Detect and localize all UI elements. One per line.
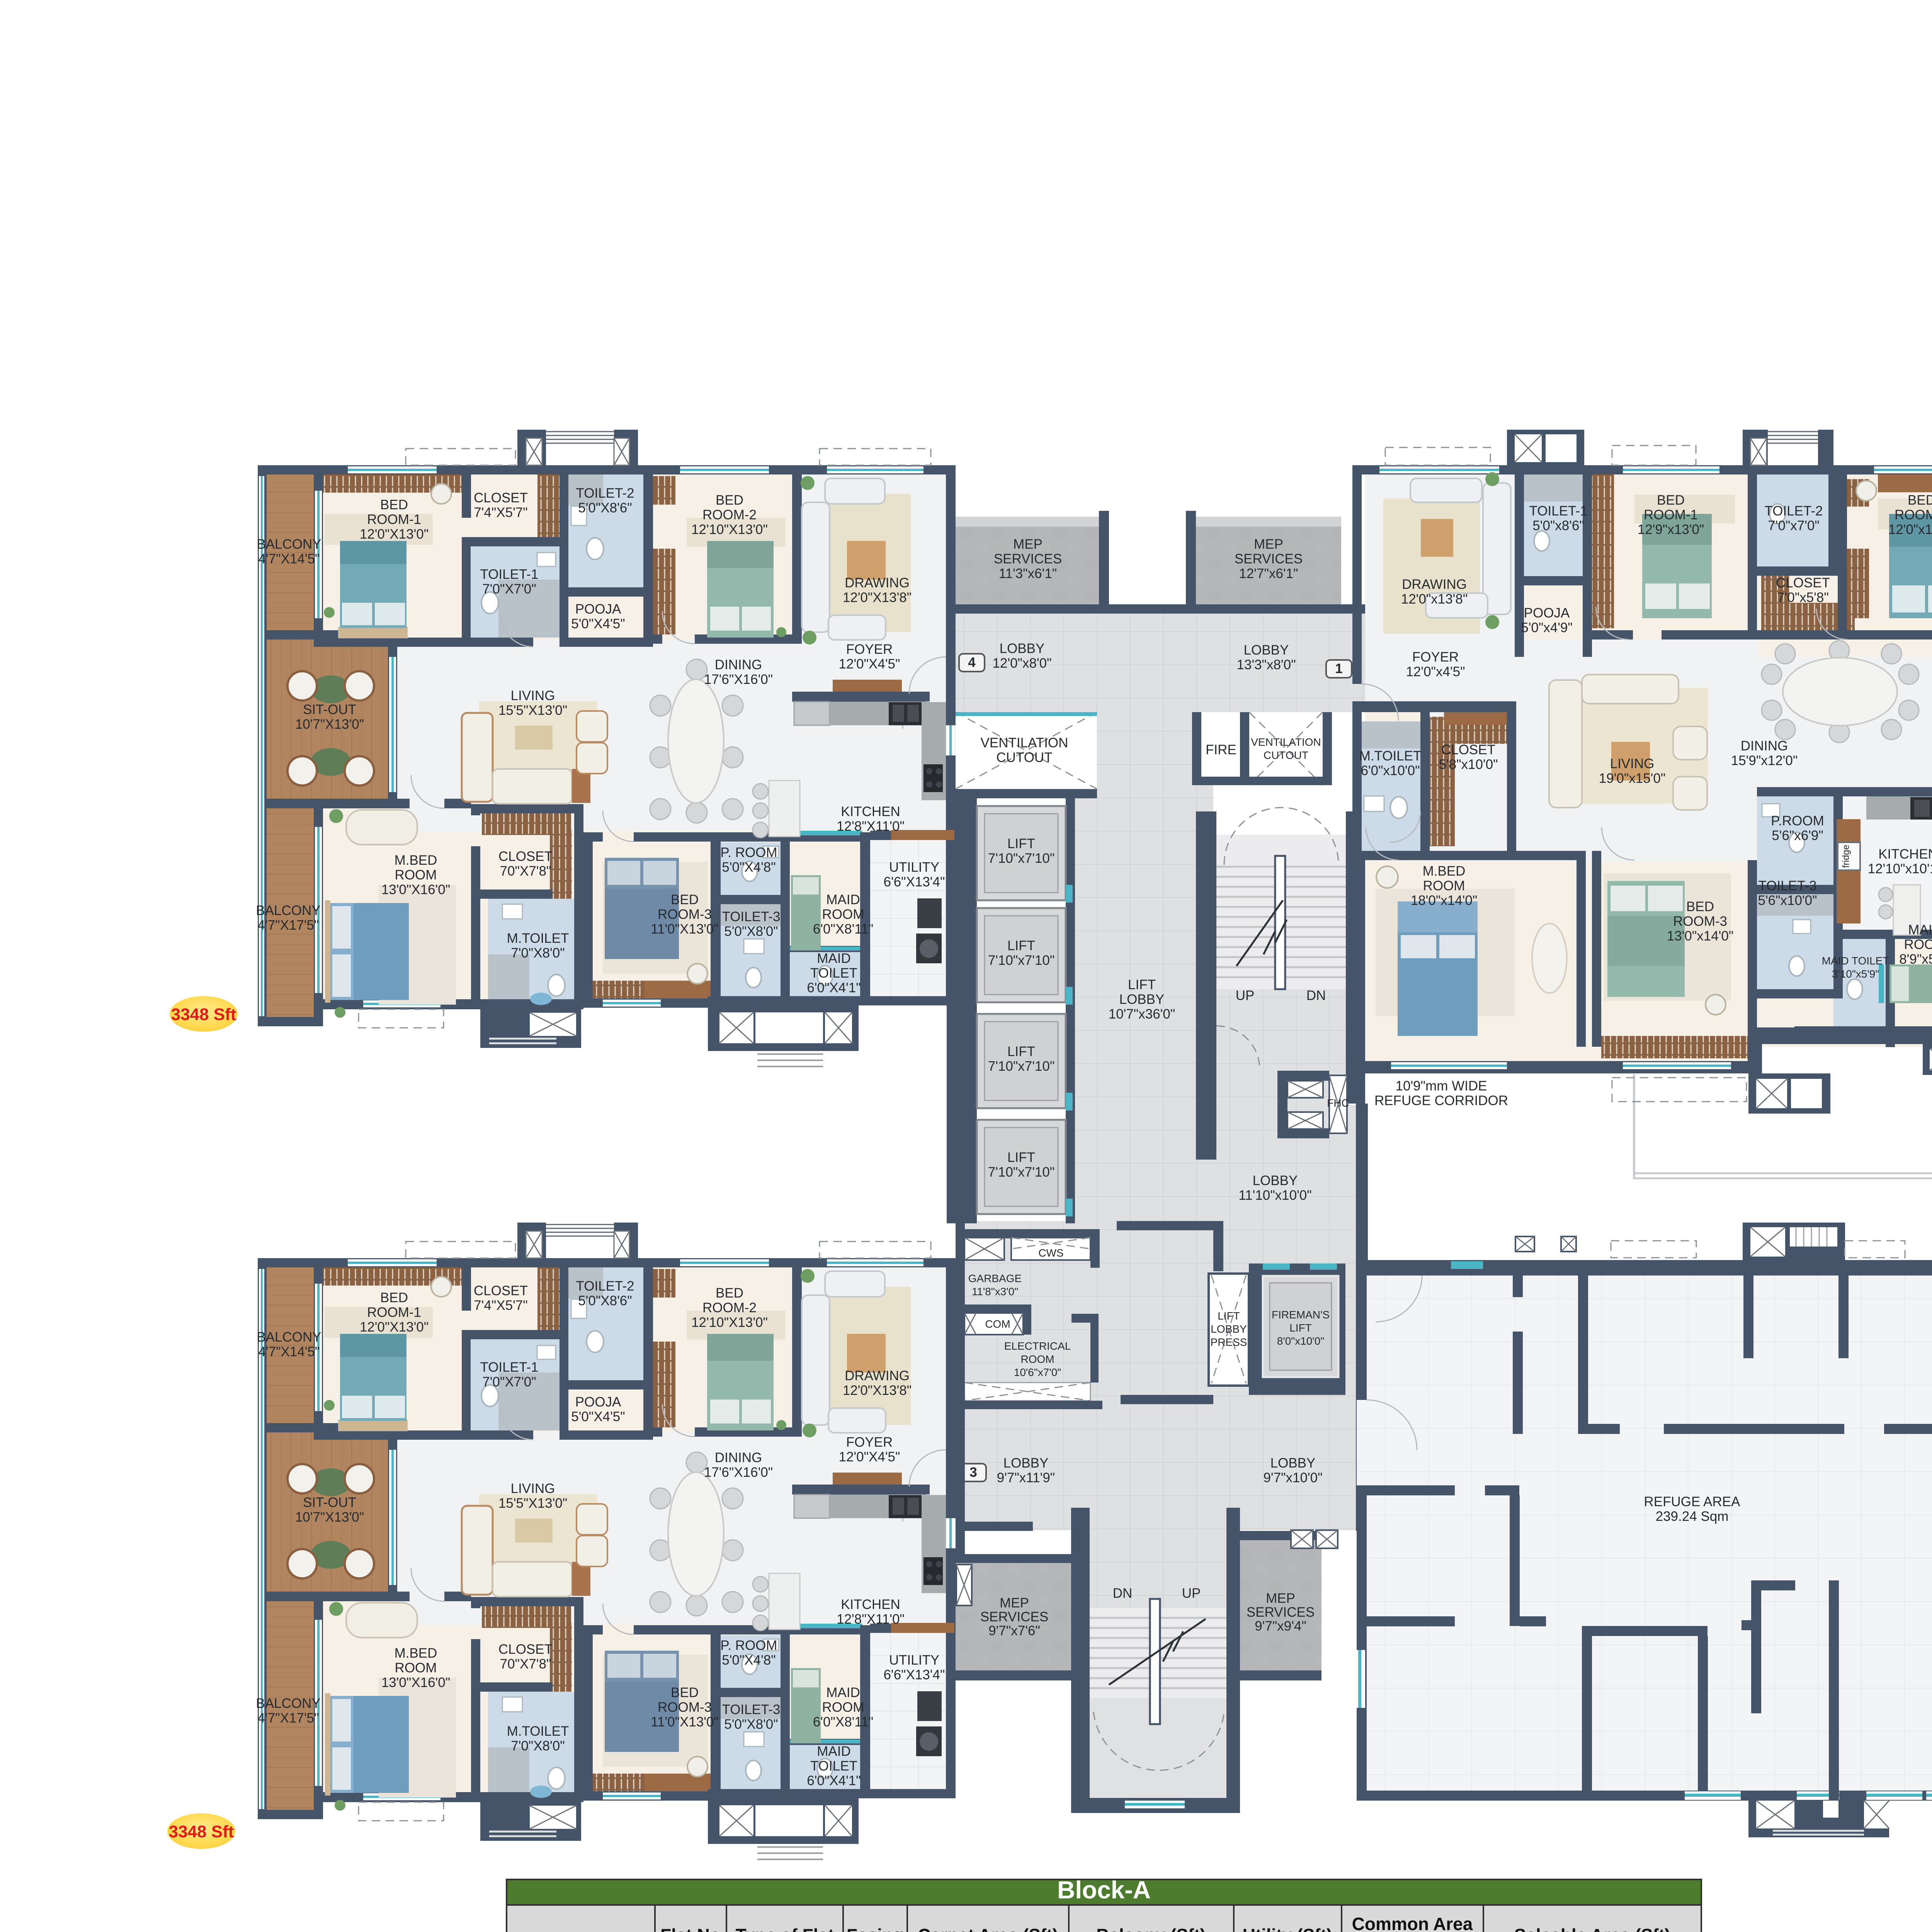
svg-text:Flat No: Flat No xyxy=(660,1925,721,1932)
svg-text:13'0"x14'0": 13'0"x14'0" xyxy=(1667,929,1734,944)
svg-text:MAID: MAID xyxy=(826,892,860,907)
svg-text:70"X7'8": 70"X7'8" xyxy=(500,864,551,879)
svg-text:8'9"x5'9": 8'9"x5'9" xyxy=(1899,952,1932,967)
svg-text:fridge: fridge xyxy=(1841,845,1851,868)
svg-text:LIFT: LIFT xyxy=(1007,1150,1035,1165)
svg-text:SIT-OUT: SIT-OUT xyxy=(303,702,356,717)
svg-text:5'0"X8'6": 5'0"X8'6" xyxy=(578,500,632,515)
svg-text:LIFT: LIFT xyxy=(1128,977,1156,992)
svg-text:12'0"x8'0": 12'0"x8'0" xyxy=(992,656,1051,671)
svg-text:Type of Flat: Type of Flat xyxy=(736,1925,834,1932)
svg-text:6'6"X13'4": 6'6"X13'4" xyxy=(884,874,945,889)
svg-text:DINING: DINING xyxy=(1741,738,1788,753)
svg-text:CLOSET: CLOSET xyxy=(474,490,528,505)
svg-text:BED: BED xyxy=(1686,899,1714,914)
svg-text:DRAWING: DRAWING xyxy=(845,575,910,590)
svg-text:P.ROOM: P.ROOM xyxy=(1771,813,1824,828)
svg-text:ROOM: ROOM xyxy=(1020,1353,1054,1365)
svg-text:Utility (Sft): Utility (Sft) xyxy=(1243,1925,1333,1932)
svg-text:LOBBY: LOBBY xyxy=(1270,1456,1316,1471)
svg-text:Carpet Area (Sft): Carpet Area (Sft) xyxy=(918,1925,1058,1932)
svg-text:5'6"x10'0": 5'6"x10'0" xyxy=(1758,893,1817,908)
svg-text:5'0"x8'6": 5'0"x8'6" xyxy=(1532,518,1584,533)
svg-text:1: 1 xyxy=(1335,661,1342,676)
svg-text:GARBAGE: GARBAGE xyxy=(968,1272,1022,1284)
svg-text:REFUGE AREA: REFUGE AREA xyxy=(1644,1494,1741,1509)
svg-text:TOILET: TOILET xyxy=(810,966,857,981)
svg-text:ROOM-1: ROOM-1 xyxy=(1644,507,1698,522)
svg-text:DRAWING: DRAWING xyxy=(1402,577,1467,592)
svg-text:BALCONY: BALCONY xyxy=(256,903,320,918)
svg-text:12'9"x13'0": 12'9"x13'0" xyxy=(1638,522,1704,537)
svg-text:ROOM: ROOM xyxy=(1904,937,1932,952)
svg-text:4'7"X17'5": 4'7"X17'5" xyxy=(258,918,319,933)
svg-text:TOILET-1: TOILET-1 xyxy=(1529,503,1587,519)
svg-text:TOILET-2: TOILET-2 xyxy=(1764,503,1823,519)
svg-text:LIVING: LIVING xyxy=(1610,756,1655,771)
svg-text:LOBBY: LOBBY xyxy=(1244,643,1289,658)
svg-text:LIFT: LIFT xyxy=(1007,836,1035,851)
svg-text:DN: DN xyxy=(1113,1586,1133,1601)
svg-text:Saleable Area (Sft): Saleable Area (Sft) xyxy=(1514,1925,1671,1932)
svg-text:UP: UP xyxy=(1182,1586,1201,1601)
svg-text:SERVICES: SERVICES xyxy=(1235,551,1303,566)
svg-text:POOJA: POOJA xyxy=(575,602,621,617)
svg-text:KITCHEN: KITCHEN xyxy=(841,804,900,819)
svg-text:LIVING: LIVING xyxy=(511,688,555,703)
svg-text:CUTOUT: CUTOUT xyxy=(1264,749,1308,761)
svg-text:6'0"X4'1": 6'0"X4'1" xyxy=(807,980,861,995)
svg-text:7'0"X7'0": 7'0"X7'0" xyxy=(482,582,536,597)
svg-text:VENTILATION: VENTILATION xyxy=(981,735,1068,750)
svg-text:12'0"x4'5": 12'0"x4'5" xyxy=(1406,664,1465,679)
svg-text:12'0"X13'0": 12'0"X13'0" xyxy=(360,527,429,542)
svg-text:12'10"X13'0": 12'10"X13'0" xyxy=(691,522,768,537)
svg-text:10'7"X13'0": 10'7"X13'0" xyxy=(295,717,364,732)
svg-text:TOILET-3: TOILET-3 xyxy=(1758,878,1816,893)
svg-text:ROOM-3: ROOM-3 xyxy=(658,907,712,922)
svg-text:3'10"x5'9": 3'10"x5'9" xyxy=(1832,968,1879,980)
svg-text:11'8"x3'0": 11'8"x3'0" xyxy=(972,1286,1018,1298)
svg-text:12'0"X4'5": 12'0"X4'5" xyxy=(839,656,900,672)
svg-text:MEP: MEP xyxy=(1254,537,1283,552)
svg-text:MEP: MEP xyxy=(1266,1591,1295,1606)
svg-text:13'0"X16'0": 13'0"X16'0" xyxy=(381,882,450,897)
svg-text:7'10"x7'10": 7'10"x7'10" xyxy=(988,851,1055,866)
svg-text:TOILET-1: TOILET-1 xyxy=(480,567,538,582)
svg-text:LIFT: LIFT xyxy=(1289,1322,1312,1334)
svg-text:10'6"x7'0": 10'6"x7'0" xyxy=(1014,1366,1061,1378)
svg-text:12'7"x6'1": 12'7"x6'1" xyxy=(1239,566,1298,581)
svg-text:BED: BED xyxy=(1908,493,1932,508)
svg-text:SERVICES: SERVICES xyxy=(994,551,1062,566)
svg-text:15'5"X13'0": 15'5"X13'0" xyxy=(498,703,567,718)
svg-text:LIFT: LIFT xyxy=(1007,938,1035,953)
svg-text:12'0"x13'8": 12'0"x13'8" xyxy=(1401,592,1468,607)
svg-text:M.BED: M.BED xyxy=(395,853,437,868)
svg-text:POOJA: POOJA xyxy=(1524,605,1570,621)
svg-text:10'7"x36'0": 10'7"x36'0" xyxy=(1109,1007,1175,1022)
svg-text:FOYER: FOYER xyxy=(846,642,893,657)
svg-text:5'8"x10'0": 5'8"x10'0" xyxy=(1439,757,1498,772)
svg-text:5'0"X4'8": 5'0"X4'8" xyxy=(722,860,776,875)
svg-text:ELECTRICAL: ELECTRICAL xyxy=(1004,1340,1071,1352)
svg-text:ROOM: ROOM xyxy=(1423,878,1465,893)
svg-text:5'0"x4'9": 5'0"x4'9" xyxy=(1521,620,1573,635)
svg-text:MAID: MAID xyxy=(1908,922,1932,937)
svg-text:P. ROOM: P. ROOM xyxy=(720,845,777,860)
svg-text:TOILET-2: TOILET-2 xyxy=(576,486,634,501)
svg-text:5'6"x6'9": 5'6"x6'9" xyxy=(1772,828,1823,843)
svg-text:MAID: MAID xyxy=(817,951,851,966)
svg-text:CLOSET: CLOSET xyxy=(498,849,553,864)
svg-text:4: 4 xyxy=(968,655,976,670)
svg-text:3: 3 xyxy=(969,1465,977,1480)
svg-text:COM: COM xyxy=(985,1318,1010,1330)
svg-text:CLOSET: CLOSET xyxy=(1776,575,1830,590)
svg-text:12'0"x13'0": 12'0"x13'0" xyxy=(1888,522,1932,537)
svg-text:ROOM-1: ROOM-1 xyxy=(367,512,421,527)
svg-text:12'8"X11'0": 12'8"X11'0" xyxy=(837,819,905,834)
svg-text:13'3"x8'0": 13'3"x8'0" xyxy=(1236,657,1296,672)
svg-text:239.24 Sqm: 239.24 Sqm xyxy=(1656,1509,1729,1524)
svg-text:UP: UP xyxy=(1236,988,1255,1003)
svg-text:7'4"X5'7": 7'4"X5'7" xyxy=(474,505,527,520)
svg-text:UTILITY: UTILITY xyxy=(889,860,939,875)
svg-text:FIRE: FIRE xyxy=(1206,742,1236,757)
svg-text:18'0"x14'0": 18'0"x14'0" xyxy=(1411,893,1478,908)
svg-text:LIFT: LIFT xyxy=(1218,1310,1240,1322)
svg-text:ROOM-2: ROOM-2 xyxy=(702,507,757,522)
svg-text:BALCONY: BALCONY xyxy=(257,537,321,552)
svg-text:MAID TOILET: MAID TOILET xyxy=(1822,955,1889,967)
svg-text:6'0"x10'0": 6'0"x10'0" xyxy=(1361,763,1420,778)
svg-text:9'7"x10'0": 9'7"x10'0" xyxy=(1263,1470,1322,1485)
svg-text:11'3"x6'1": 11'3"x6'1" xyxy=(999,566,1057,581)
svg-text:9'7"x11'9": 9'7"x11'9" xyxy=(997,1470,1055,1485)
svg-text:VENTILATION: VENTILATION xyxy=(1251,736,1321,748)
svg-text:PRESS: PRESS xyxy=(1211,1336,1247,1348)
svg-text:REFUGE CORRIDOR: REFUGE CORRIDOR xyxy=(1374,1093,1508,1108)
svg-text:7'0"X8'0": 7'0"X8'0" xyxy=(511,946,565,961)
svg-text:ROOM: ROOM xyxy=(395,867,437,883)
svg-text:FIREMAN'S: FIREMAN'S xyxy=(1272,1309,1330,1321)
svg-text:LIFT: LIFT xyxy=(1007,1044,1035,1059)
svg-text:6'0"X8'11": 6'0"X8'11" xyxy=(813,922,873,937)
svg-text:11'10"x10'0": 11'10"x10'0" xyxy=(1238,1188,1311,1203)
svg-text:CWS: CWS xyxy=(1038,1247,1063,1259)
svg-text:3348 Sft: 3348 Sft xyxy=(169,1822,234,1841)
svg-text:SERVICES: SERVICES xyxy=(1247,1605,1315,1620)
svg-text:CLOSET: CLOSET xyxy=(1441,742,1495,757)
svg-text:LOBBY: LOBBY xyxy=(1000,641,1045,656)
svg-text:FOYER: FOYER xyxy=(1412,650,1459,665)
svg-text:LOBBY: LOBBY xyxy=(1253,1173,1298,1188)
svg-text:7'0"x7'0": 7'0"x7'0" xyxy=(1768,518,1820,533)
svg-text:Balcony (Sft): Balcony (Sft) xyxy=(1096,1925,1206,1932)
svg-text:CUTOUT: CUTOUT xyxy=(996,750,1052,765)
svg-text:M.BED: M.BED xyxy=(1423,864,1466,879)
svg-text:7'10"x7'10": 7'10"x7'10" xyxy=(988,953,1055,968)
svg-text:M.TOILET: M.TOILET xyxy=(1359,748,1422,764)
svg-text:5'0"X8'0": 5'0"X8'0" xyxy=(724,924,778,939)
svg-text:7'0"x5'8": 7'0"x5'8" xyxy=(1777,590,1829,605)
svg-text:12'0"X13'8": 12'0"X13'8" xyxy=(843,590,912,605)
svg-text:17'6"X16'0": 17'6"X16'0" xyxy=(704,672,773,687)
svg-text:9'7"x7'6": 9'7"x7'6" xyxy=(988,1623,1040,1638)
svg-text:MEP: MEP xyxy=(1013,537,1043,552)
svg-text:BED: BED xyxy=(380,497,408,512)
svg-text:MEP: MEP xyxy=(1000,1595,1029,1611)
svg-text:9'7"x9'4": 9'7"x9'4" xyxy=(1255,1619,1306,1634)
svg-text:KITCHEN: KITCHEN xyxy=(1878,847,1932,862)
svg-text:7'10"x7'10": 7'10"x7'10" xyxy=(988,1059,1055,1074)
svg-text:15'9"x12'0": 15'9"x12'0" xyxy=(1731,753,1798,768)
svg-text:19'0"x15'0": 19'0"x15'0" xyxy=(1599,771,1666,786)
svg-text:11'0"X13'0": 11'0"X13'0" xyxy=(651,922,719,937)
svg-text:TOILET-3: TOILET-3 xyxy=(722,909,780,924)
svg-text:BED: BED xyxy=(1657,493,1685,508)
svg-text:Common Area: Common Area xyxy=(1352,1914,1473,1932)
svg-text:ROOM: ROOM xyxy=(822,907,864,922)
svg-text:Facing: Facing xyxy=(847,1925,904,1932)
svg-text:LOBBY: LOBBY xyxy=(1211,1323,1247,1335)
svg-text:4'7"X14'5": 4'7"X14'5" xyxy=(259,551,320,566)
svg-text:LOBBY: LOBBY xyxy=(1119,992,1165,1007)
svg-text:SERVICES: SERVICES xyxy=(980,1609,1048,1624)
svg-text:BED: BED xyxy=(716,493,743,508)
svg-text:8'0"x10'0": 8'0"x10'0" xyxy=(1277,1335,1324,1347)
svg-text:7'10"x7'10": 7'10"x7'10" xyxy=(988,1165,1055,1180)
svg-text:10'9"mm WIDE: 10'9"mm WIDE xyxy=(1396,1078,1487,1094)
svg-text:DINING: DINING xyxy=(715,657,762,672)
svg-text:DN: DN xyxy=(1306,988,1326,1003)
svg-text:ROOM-3: ROOM-3 xyxy=(1673,914,1727,929)
svg-text:FHC: FHC xyxy=(1327,1097,1349,1109)
svg-text:LOBBY: LOBBY xyxy=(1003,1456,1049,1471)
svg-text:ROOM-2: ROOM-2 xyxy=(1895,507,1932,522)
svg-text:5'0"X4'5": 5'0"X4'5" xyxy=(571,616,625,631)
svg-text:BED: BED xyxy=(671,892,699,907)
svg-text:12'10"x10'11": 12'10"x10'11" xyxy=(1868,861,1932,876)
svg-text:3348 Sft: 3348 Sft xyxy=(171,1005,236,1024)
svg-text:M.TOILET: M.TOILET xyxy=(507,931,569,946)
